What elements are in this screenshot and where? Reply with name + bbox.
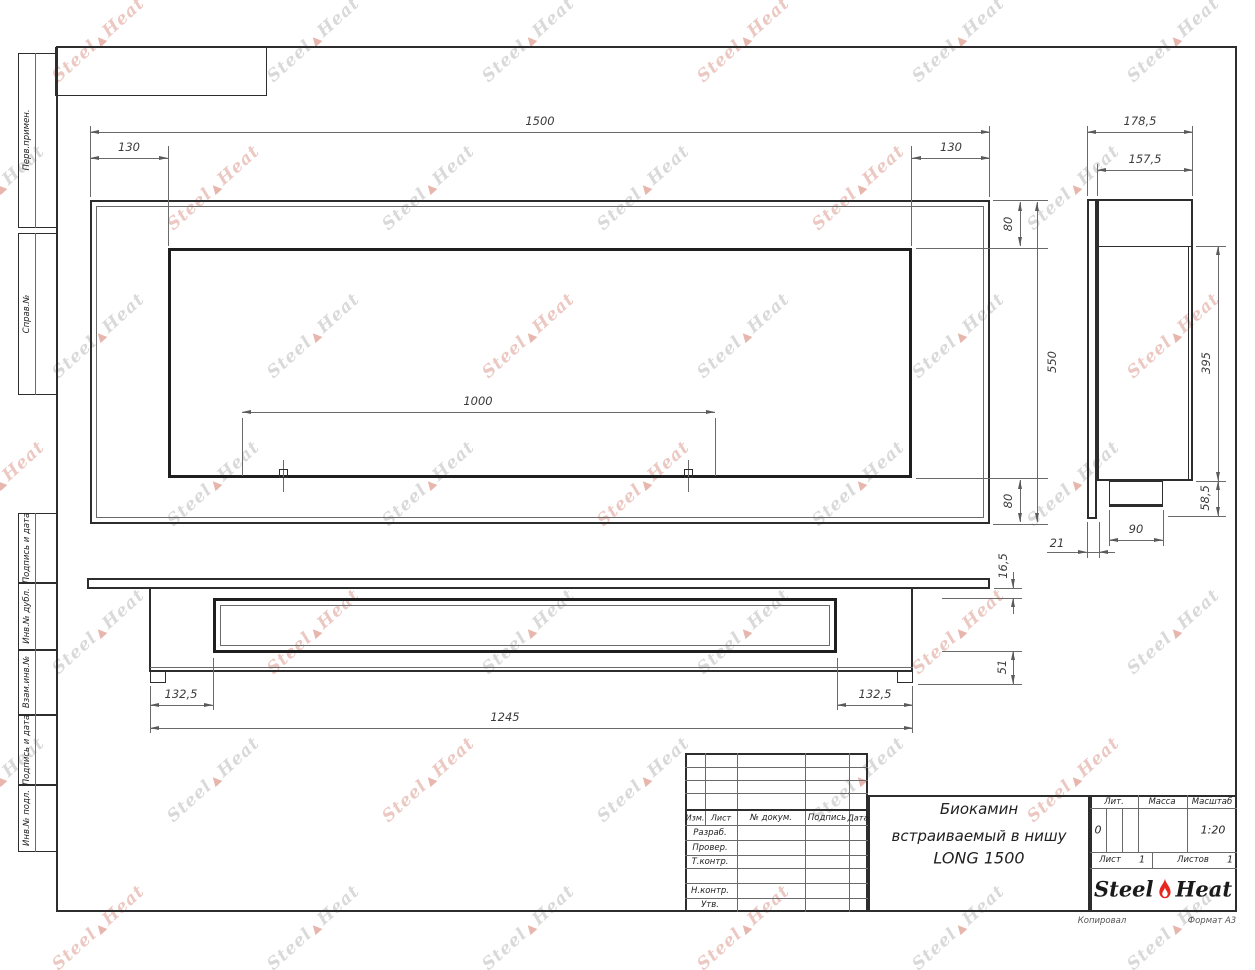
bottom-foot-left: [150, 672, 166, 683]
dim-bottom-plate-thickness: 16,5: [996, 553, 1010, 579]
scale-label: Масштаб: [1192, 797, 1232, 807]
dimension-arrow: [1035, 513, 1039, 522]
dim-bottom-tray-depth: 51: [995, 660, 1009, 675]
dimension-arrow: [1011, 651, 1015, 660]
line: [685, 883, 868, 884]
dimension-arrow: [1109, 538, 1118, 542]
line: [1097, 246, 1193, 247]
dimension-arrow: [1216, 481, 1220, 490]
dim-bottom-inset-right: 132,5: [859, 687, 892, 701]
dimension-arrow: [204, 703, 213, 707]
dimension-arrow: [150, 703, 159, 707]
dimension-arrow: [904, 726, 913, 730]
lit-label: Лит.: [1104, 797, 1124, 807]
line: [685, 898, 868, 899]
dimension-arrow: [1018, 237, 1022, 246]
dimension-arrow: [981, 130, 990, 134]
line: [911, 146, 912, 246]
role-prover: Провер.: [692, 843, 727, 853]
doc-title-line3: LONG 1500: [933, 849, 1024, 868]
doc-title-line1: Биокамин: [940, 800, 1018, 818]
scale-value: 1:20: [1201, 824, 1226, 837]
line: [837, 705, 913, 706]
copied-by-note: Копировал: [1078, 916, 1127, 926]
line: [1122, 808, 1123, 852]
line: [1087, 132, 1193, 133]
line: [1188, 246, 1189, 481]
dim-bottom-body-length: 1245: [490, 710, 519, 724]
brand-word1: Steel: [1094, 877, 1154, 902]
line: [90, 126, 91, 197]
dim-front-total-width: 1500: [525, 114, 554, 128]
line: [918, 684, 1022, 685]
dim-front-bottom-offset: 80: [1001, 494, 1015, 509]
drawing-sheet: Steel▲HeatSteel▲HeatSteel▲HeatSteel▲Heat…: [0, 0, 1255, 970]
side-burner-box: [1109, 481, 1163, 507]
line: [242, 418, 243, 476]
line: [35, 53, 36, 228]
line: [90, 158, 168, 159]
line: [1196, 246, 1226, 247]
dimension-arrow: [1216, 507, 1220, 516]
drawing-layer: Перв.примен. Справ.№ Подпись и дата Инв.…: [0, 0, 1255, 970]
side-wall-plate: [1087, 199, 1097, 519]
top-left-reference-box: [55, 47, 267, 96]
dimension-arrow: [904, 703, 913, 707]
line: [242, 412, 715, 413]
stamp-label: Подпись и дата: [22, 715, 32, 785]
dimension-arrow: [242, 410, 251, 414]
dimension-arrow: [90, 130, 99, 134]
line: [989, 126, 990, 197]
col-data: Дата: [848, 814, 869, 823]
line: [35, 785, 36, 852]
sheet-label: Лист: [1099, 855, 1121, 865]
line: [805, 753, 806, 912]
line: [1168, 516, 1226, 517]
line: [685, 780, 868, 781]
mounting-bracket: [279, 469, 288, 478]
dim-front-total-height: 550: [1045, 351, 1059, 373]
role-utv: Утв.: [701, 900, 719, 910]
line: [715, 418, 716, 476]
dimension-arrow: [706, 410, 715, 414]
line: [685, 840, 868, 841]
dimension-arrow: [90, 156, 99, 160]
dim-front-top-offset: 80: [1001, 217, 1015, 232]
line: [705, 753, 706, 825]
dimension-arrow: [912, 156, 921, 160]
line: [213, 658, 214, 710]
line: [150, 667, 913, 668]
dimension-arrow: [1011, 598, 1015, 607]
dimension-arrow: [1035, 202, 1039, 211]
line: [912, 158, 990, 159]
line: [149, 588, 151, 672]
sheet-value: 1: [1139, 855, 1145, 866]
line: [1235, 46, 1237, 912]
line: [1152, 852, 1153, 868]
format-note: Формат А3: [1188, 916, 1236, 926]
role-nkontr: Н.контр.: [691, 886, 729, 896]
line: [737, 753, 738, 912]
line: [1187, 795, 1188, 852]
dim-side-body-depth: 157,5: [1129, 152, 1162, 166]
dim-side-burner-width: 90: [1129, 522, 1144, 536]
line: [1138, 795, 1139, 852]
dimension-arrow: [1078, 550, 1087, 554]
dimension-arrow: [981, 156, 990, 160]
line: [35, 650, 36, 715]
col-list: Лист: [711, 814, 731, 823]
line: [916, 478, 1048, 479]
line: [1090, 852, 1237, 853]
side-body: [1097, 199, 1193, 481]
line: [1218, 246, 1219, 481]
stamp-label: Перв.примен.: [22, 109, 32, 170]
dimension-arrow: [150, 726, 159, 730]
dimension-arrow: [1011, 675, 1015, 684]
dimension-arrow: [1184, 130, 1193, 134]
line: [916, 248, 1048, 249]
brand-word2: Heat: [1176, 877, 1233, 902]
line: [1037, 202, 1038, 522]
line: [1106, 808, 1107, 852]
line: [1090, 868, 1237, 869]
sheets-label: Листов: [1177, 855, 1209, 865]
line: [35, 715, 36, 785]
mass-label: Масса: [1148, 797, 1175, 807]
dimension-arrow: [1184, 168, 1193, 172]
line: [1087, 126, 1088, 196]
line: [35, 583, 36, 650]
dimension-arrow: [1087, 130, 1096, 134]
dimension-arrow: [159, 156, 168, 160]
line: [168, 146, 169, 246]
line: [685, 767, 868, 768]
dim-bottom-inset-left: 132,5: [165, 687, 198, 701]
line: [1196, 481, 1226, 482]
role-tkontr: Т.контр.: [692, 857, 729, 867]
line: [1192, 126, 1193, 196]
bottom-top-plate: [87, 578, 990, 589]
bottom-foot-right: [897, 672, 913, 683]
stamp-label: Взам.инв.№: [22, 656, 32, 708]
dim-side-plate-offset: 21: [1050, 536, 1065, 550]
sheets-value: 1: [1227, 855, 1233, 866]
dimension-arrow: [1216, 246, 1220, 255]
dimension-arrow: [1011, 579, 1015, 588]
contour: [220, 605, 830, 646]
line: [90, 132, 990, 133]
dim-side-total-depth: 178,5: [1124, 114, 1157, 128]
doc-title-line2: встраиваемый в нишу: [892, 827, 1067, 845]
line: [150, 728, 913, 729]
dimension-arrow: [1018, 202, 1022, 211]
line: [150, 670, 913, 672]
stamp-label: Инв.№ подл.: [22, 790, 32, 846]
dimension-arrow: [837, 703, 846, 707]
line: [685, 809, 868, 811]
dim-front-inset-left: 130: [118, 140, 140, 154]
col-podpis: Подпись: [808, 813, 846, 823]
dimension-arrow: [1099, 550, 1108, 554]
line: [685, 793, 868, 794]
line: [685, 868, 868, 869]
line: [1090, 808, 1237, 809]
line: [993, 524, 1048, 525]
front-opening: [168, 248, 912, 478]
line: [993, 200, 1048, 201]
dim-side-niche-height: 395: [1199, 352, 1213, 374]
line: [911, 588, 913, 672]
dim-front-inset-right: 130: [940, 140, 962, 154]
line: [942, 651, 1022, 652]
dimension-arrow: [1018, 480, 1022, 489]
dimension-arrow: [1097, 168, 1106, 172]
mounting-bracket: [684, 469, 693, 478]
element: [1157, 878, 1173, 900]
role-razrab: Разраб.: [693, 828, 726, 838]
col-ndoc: № докум.: [750, 813, 792, 823]
line: [35, 233, 36, 395]
dimension-arrow: [1154, 538, 1163, 542]
line: [685, 825, 868, 826]
line: [942, 598, 1022, 599]
dim-side-bottom-lip: 58,5: [1198, 485, 1212, 511]
stamp-label: Инв.№ дубл.: [22, 588, 32, 643]
flame-icon: [1157, 878, 1173, 900]
dim-front-bracket-span: 1000: [463, 394, 492, 408]
line: [685, 855, 868, 856]
line: [994, 588, 1022, 589]
dimension-arrow: [1216, 472, 1220, 481]
brand-logo: Steel Heat: [1094, 877, 1232, 902]
stamp-label: Подпись и дата: [22, 513, 32, 583]
line: [1097, 170, 1193, 171]
line: [35, 513, 36, 583]
col-izm: Изм.: [686, 814, 705, 823]
line: [1163, 510, 1164, 546]
dimension-arrow: [1018, 513, 1022, 522]
stamp-label: Справ.№: [22, 295, 32, 334]
line: [849, 753, 850, 912]
lit-value: 0: [1095, 824, 1102, 837]
